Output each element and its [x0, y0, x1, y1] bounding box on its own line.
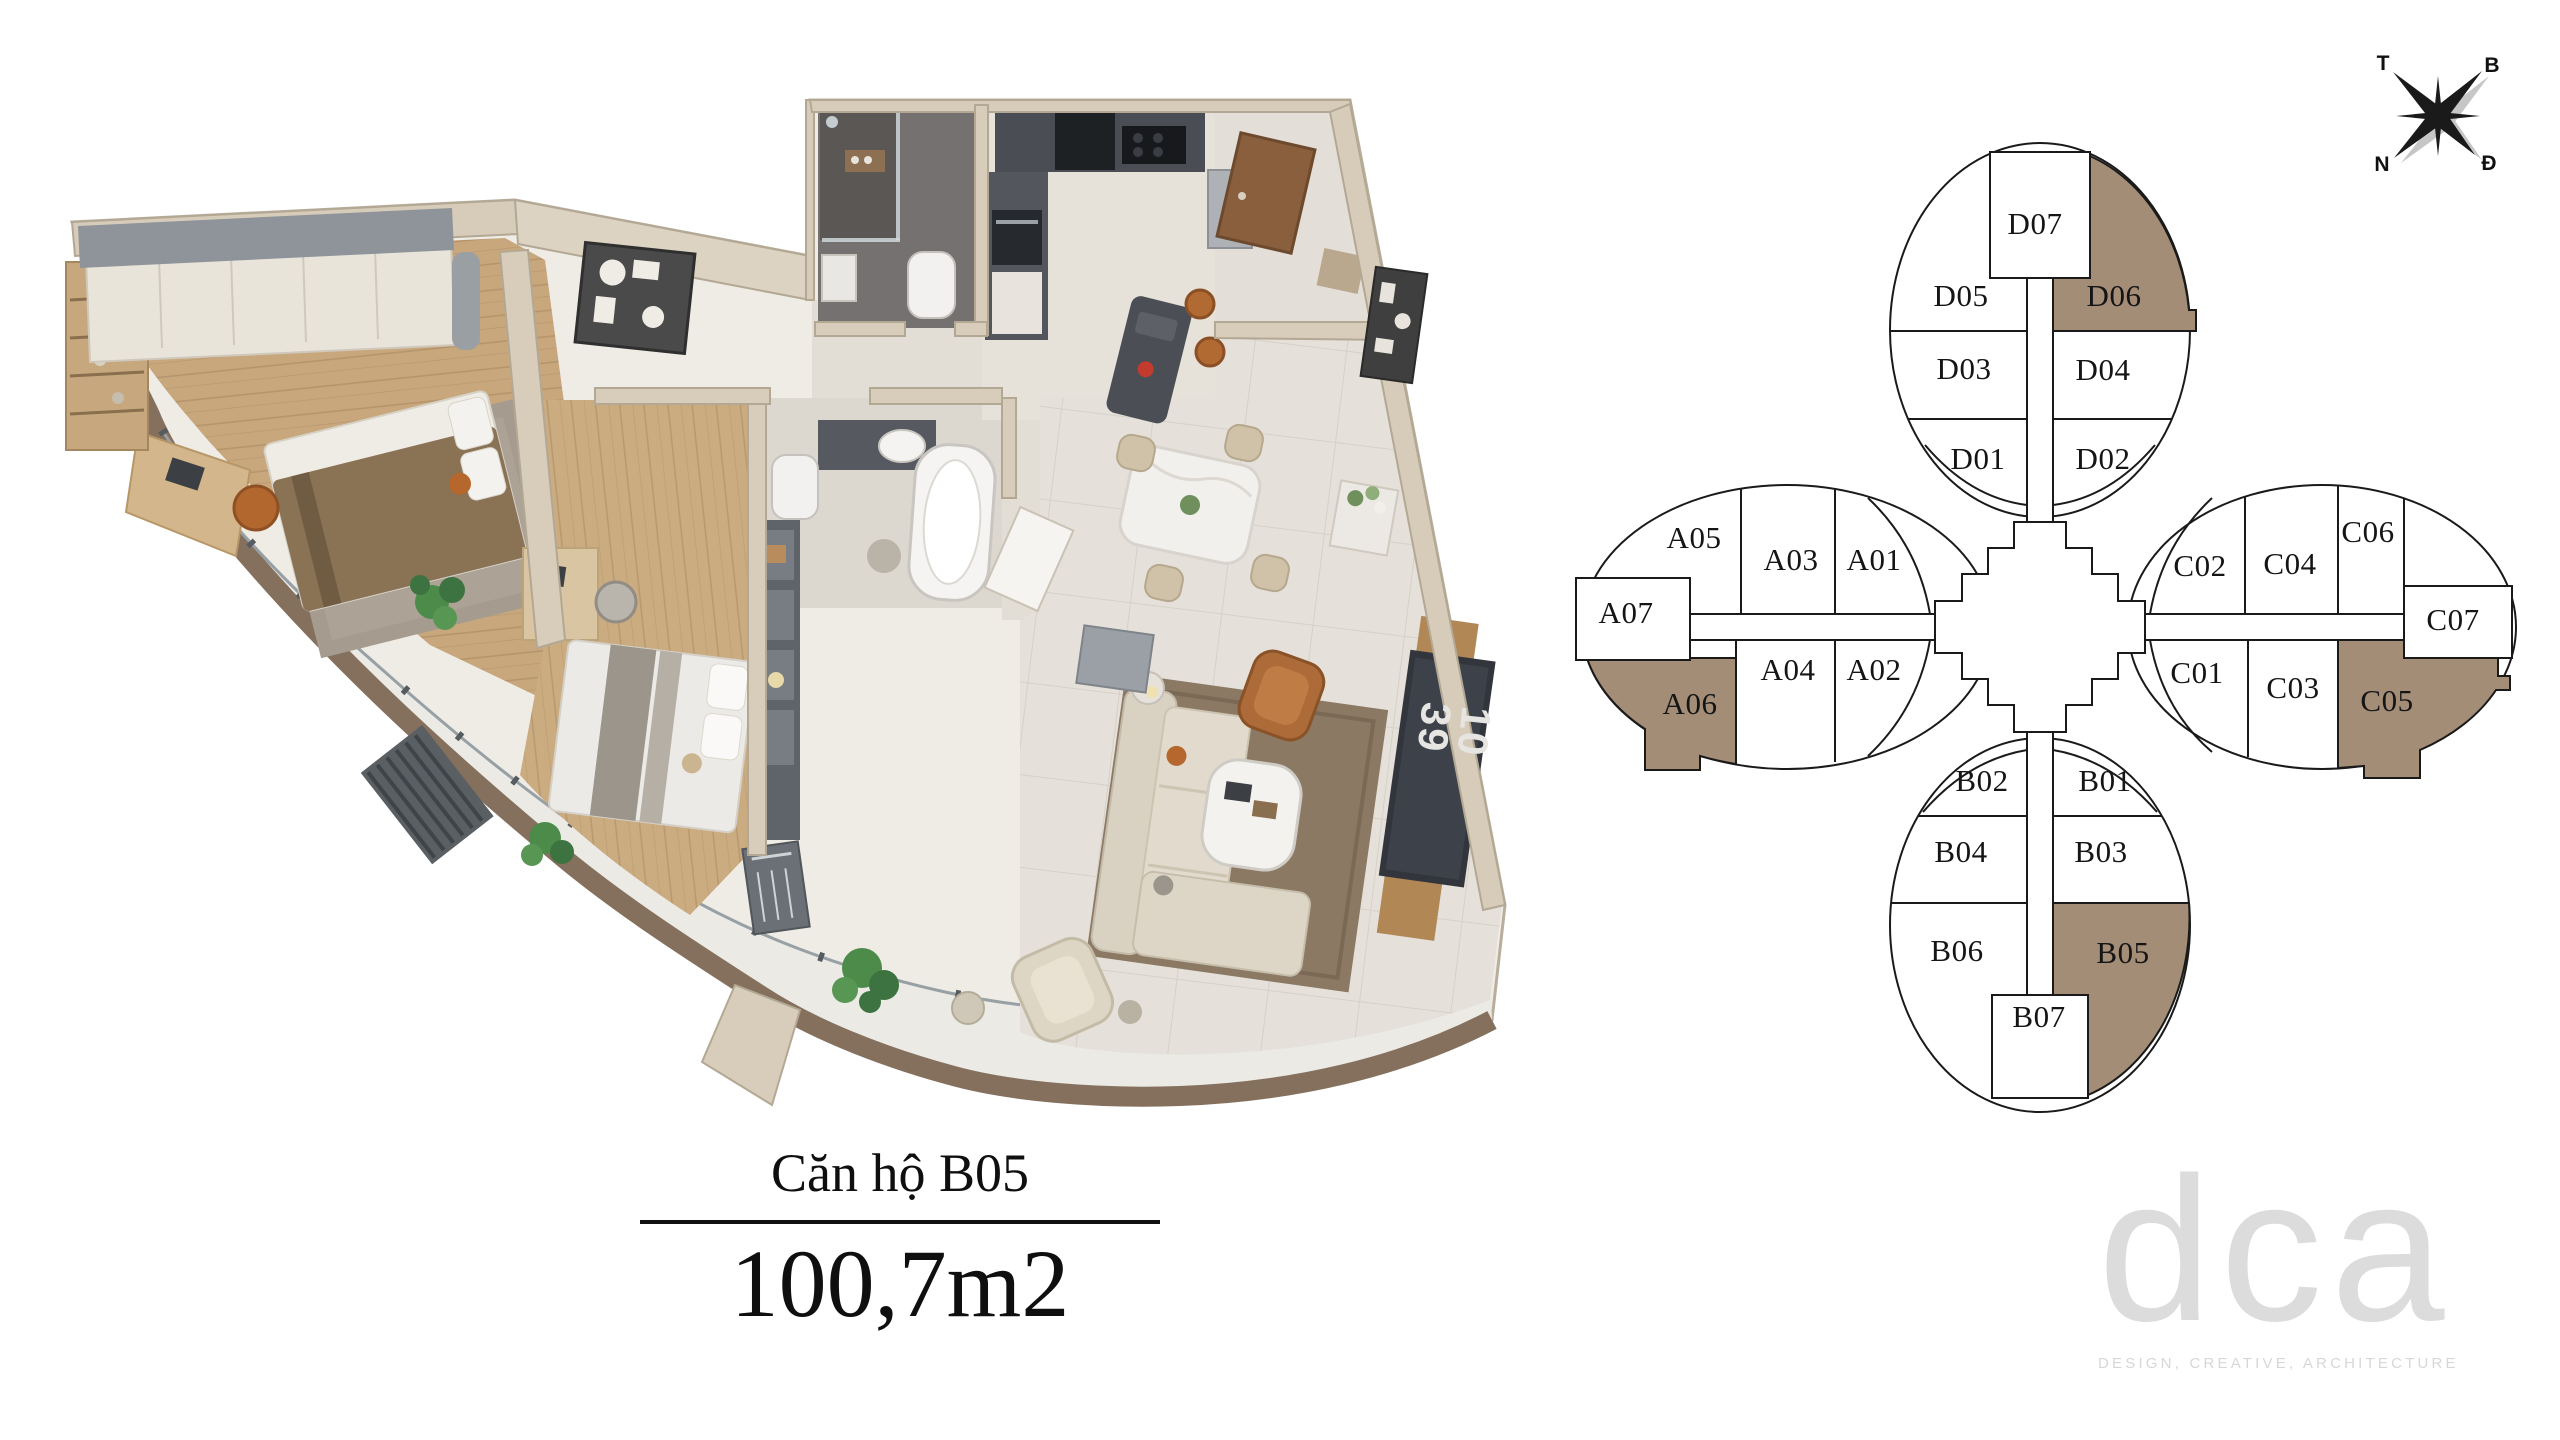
unit-label-a05[interactable]: A05: [1667, 520, 1722, 556]
range-hood: [1055, 108, 1115, 170]
bedroom2-bed: [548, 639, 756, 833]
scene-graphics: [0, 0, 2560, 1440]
building-key-diagram: [1576, 143, 2516, 1112]
unit-label-b04[interactable]: B04: [1934, 834, 1987, 870]
unit-label-d03[interactable]: D03: [1937, 351, 1992, 387]
unit-label-c06[interactable]: C06: [2341, 514, 2394, 550]
unit-label-b01[interactable]: B01: [2078, 763, 2131, 799]
main-bath-sink: [822, 255, 856, 301]
unit-label-a04[interactable]: A04: [1761, 652, 1816, 688]
bedroom2-chair: [596, 582, 636, 622]
central-core: [1935, 522, 2145, 732]
unit-label-a06[interactable]: A06: [1663, 686, 1718, 722]
unit-label-d07[interactable]: D07: [2008, 206, 2063, 242]
unit-label-a02[interactable]: A02: [1847, 652, 1902, 688]
unit-label-b06[interactable]: B06: [1930, 933, 1983, 969]
ensuite-bathtub: [907, 442, 998, 602]
main-bath-toilet: [908, 252, 955, 318]
page: { "unit_card": { "name": "Căn hộ B05", "…: [0, 0, 2560, 1440]
wardrobe-column: [452, 252, 480, 350]
unit-label-c04[interactable]: C04: [2263, 546, 2316, 582]
oven: [992, 210, 1042, 265]
master-artwork: [575, 243, 695, 354]
unit-label-c03[interactable]: C03: [2266, 670, 2319, 706]
table-lamp: [1146, 686, 1158, 698]
bar-stool-1: [1186, 290, 1214, 318]
unit-label-b03[interactable]: B03: [2074, 834, 2127, 870]
unit-label-b05[interactable]: B05: [2096, 935, 2149, 971]
unit-label-d04[interactable]: D04: [2076, 352, 2131, 388]
unit-label-a01[interactable]: A01: [1847, 542, 1902, 578]
balcony-side-table: [1118, 1000, 1142, 1024]
wardrobe: [78, 208, 480, 362]
unit-label-d06[interactable]: D06: [2087, 278, 2142, 314]
unit-label-b02[interactable]: B02: [1955, 763, 2008, 799]
unit-label-d01[interactable]: D01: [1951, 441, 2006, 477]
unit-label-b07[interactable]: B07: [2012, 999, 2065, 1035]
unit-label-a03[interactable]: A03: [1764, 542, 1819, 578]
unit-label-c05[interactable]: C05: [2360, 683, 2413, 719]
compass-icon: [2393, 71, 2489, 163]
coffee-table: [1198, 756, 1305, 874]
console-table: [1330, 480, 1399, 555]
balcony-pouf: [952, 992, 984, 1024]
cooktop: [1122, 126, 1186, 164]
unit-label-a07[interactable]: A07: [1599, 595, 1654, 631]
unit-label-c02[interactable]: C02: [2173, 548, 2226, 584]
ensuite-toilet: [772, 455, 818, 519]
low-cabinet: [1076, 625, 1153, 692]
unit-label-d02[interactable]: D02: [2076, 441, 2131, 477]
bar-stool-2: [1196, 338, 1224, 366]
unit-label-c07[interactable]: C07: [2426, 602, 2479, 638]
bath-mat: [867, 539, 901, 573]
unit-label-c01[interactable]: C01: [2170, 655, 2223, 691]
desk-chair: [234, 486, 278, 530]
unit-label-d05[interactable]: D05: [1934, 278, 1989, 314]
floor-plan-render: [66, 100, 1505, 1105]
